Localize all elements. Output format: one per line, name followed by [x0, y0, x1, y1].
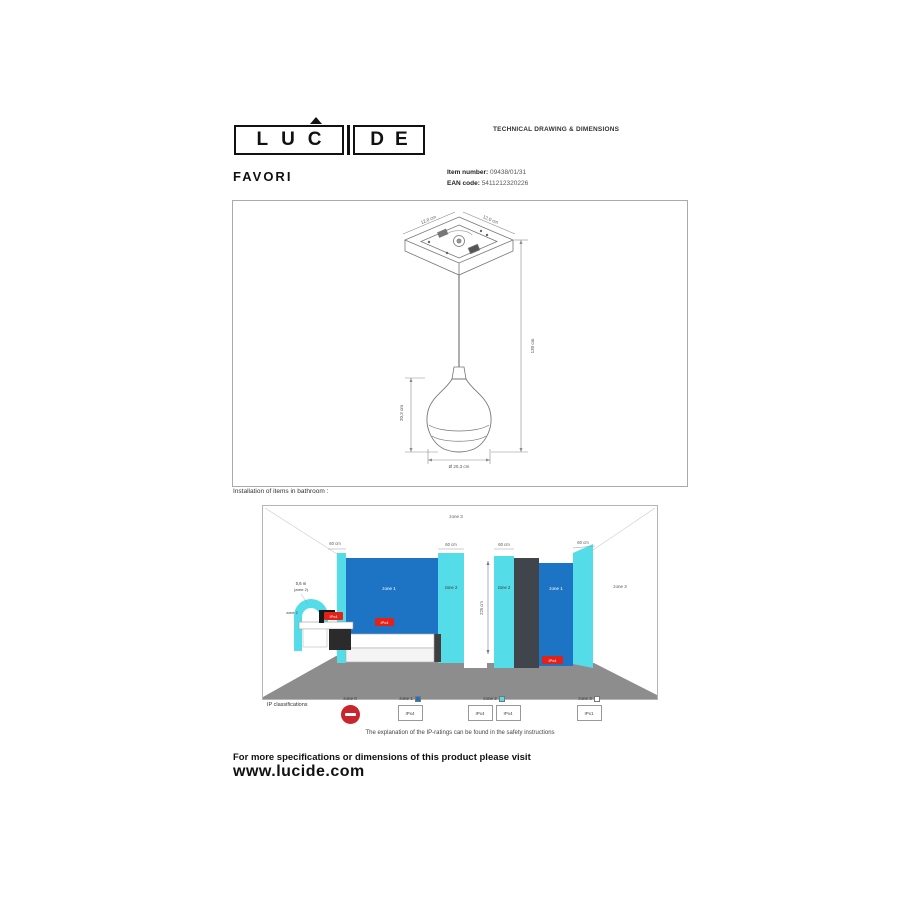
ip-rating-box: IPx4: [496, 705, 521, 721]
product-info: Item number: 09438/01/31 EAN code: 54112…: [447, 167, 528, 189]
dim-shade-diameter: Ø 20,3 cm: [449, 464, 470, 469]
badge-tub-ip: IPx4: [380, 620, 389, 625]
footer-website-link[interactable]: www.lucide.com: [233, 763, 365, 781]
dim-shade-height: 20,3 cm: [399, 405, 404, 421]
label-dim-2: 60 cm: [445, 542, 457, 547]
no-entry-bar: [345, 713, 356, 717]
ip-legend-title: IP classifications: [267, 702, 308, 708]
ip-rating-box: IPx4: [398, 705, 423, 721]
product-name: FAVORI: [233, 169, 292, 184]
dim-total-height: 130 cm: [530, 338, 535, 353]
ip-legend-note: The explanation of the IP-ratings can be…: [232, 730, 688, 736]
shower-zone-group: [494, 544, 593, 668]
item-number-label: Item number:: [447, 169, 488, 176]
label-basin-zone: zone 2: [286, 611, 297, 615]
legend-zone3-boxes: IPx1: [559, 705, 619, 721]
logo-accent-icon: [310, 117, 322, 124]
label-shower-zone2: zone 2: [498, 585, 511, 590]
logo-box-left: LUC: [234, 125, 344, 155]
zone1-color-swatch-icon: [415, 696, 421, 702]
label-zone3-top: zone 3: [449, 514, 463, 519]
label-dim-1: 60 cm: [329, 541, 341, 546]
ean-code-value: 5411212320226: [482, 180, 529, 187]
spec-sheet-page: LUC DE TECHNICAL DRAWING & DIMENSIONS FA…: [0, 0, 910, 910]
label-room-height: 225 cm: [479, 601, 484, 615]
logo-box-right: DE: [353, 125, 425, 155]
bathroom-section-title: Installation of items in bathroom :: [233, 488, 328, 495]
no-entry-icon: [341, 705, 360, 724]
logo-text-left: LUC: [256, 129, 334, 151]
legend-zone1-boxes: IPx4: [380, 705, 440, 721]
zone2-color-swatch-icon: [499, 696, 505, 702]
doc-title: TECHNICAL DRAWING & DIMENSIONS: [493, 126, 693, 133]
legend-zone2-boxes: IPx4 IPx4: [454, 705, 534, 721]
legend-zone1-label: zone 1: [380, 695, 440, 702]
legend-zone1-text: zone 1: [399, 696, 413, 701]
legend-zone3-text: zone 3: [578, 696, 592, 701]
globe-shade: [427, 379, 491, 452]
legend-zone1: zone 1 IPx4: [380, 695, 440, 721]
label-basin-radius-sub: (zone 2): [294, 588, 309, 592]
legend-zone0: zone 0: [320, 695, 380, 724]
label-zone3-right: zone 3: [613, 584, 627, 589]
label-dim-3: 60 cm: [498, 542, 510, 547]
footer-text: For more specifications or dimensions of…: [233, 752, 531, 763]
technical-drawing: 12,0 cm 12,0 cm 130 cm 20,3 cm Ø 20,3 cm: [233, 201, 687, 486]
bathtub-zone-group: [337, 553, 464, 663]
bathroom-zones-diagram: zone 3 60 cm 60 cm 60 cm 60 cm 0,6 m (zo…: [263, 506, 657, 699]
legend-zone2-text: zone 2: [483, 696, 497, 701]
logo-text-right: DE: [370, 129, 418, 151]
legend-zone0-label: zone 0: [320, 695, 380, 702]
item-number-value: 09438/01/31: [490, 169, 526, 176]
item-number-row: Item number: 09438/01/31: [447, 167, 528, 178]
legend-zone2: zone 2 IPx4 IPx4: [454, 695, 534, 721]
ean-code-label: EAN code:: [447, 180, 480, 187]
label-shower-zone1: zone 1: [549, 586, 563, 591]
badge-basin-ip: IPx4: [329, 614, 338, 619]
zone3-color-swatch-icon: [594, 696, 600, 702]
pendant-cable: [452, 275, 466, 379]
badge-shower-ip: IPx4: [548, 658, 557, 663]
label-basin-radius: 0,6 m: [296, 581, 307, 586]
top-dimension-lines: [328, 546, 595, 549]
canopy-drawing: [405, 217, 513, 275]
legend-zone3-label: zone 3: [559, 695, 619, 702]
dimension-lines: [403, 212, 528, 464]
ip-rating-box: IPx4: [468, 705, 493, 721]
label-tub-zone1: zone 1: [382, 586, 396, 591]
label-dim-4: 60 cm: [577, 540, 589, 545]
legend-zone2-label: zone 2: [454, 695, 534, 702]
height-dimension: [487, 561, 490, 654]
bathroom-zones-box: zone 3 60 cm 60 cm 60 cm 60 cm 0,6 m (zo…: [262, 505, 658, 700]
ean-code-row: EAN code: 5411212320226: [447, 178, 528, 189]
technical-drawing-box: 12,0 cm 12,0 cm 130 cm 20,3 cm Ø 20,3 cm: [232, 200, 688, 487]
logo-i-bar: [347, 125, 350, 155]
legend-zone3: zone 3 IPx1: [559, 695, 619, 721]
label-tub-zone2: zone 2: [445, 585, 458, 590]
lucide-logo: LUC DE: [234, 125, 425, 155]
ip-rating-box: IPx1: [577, 705, 602, 721]
